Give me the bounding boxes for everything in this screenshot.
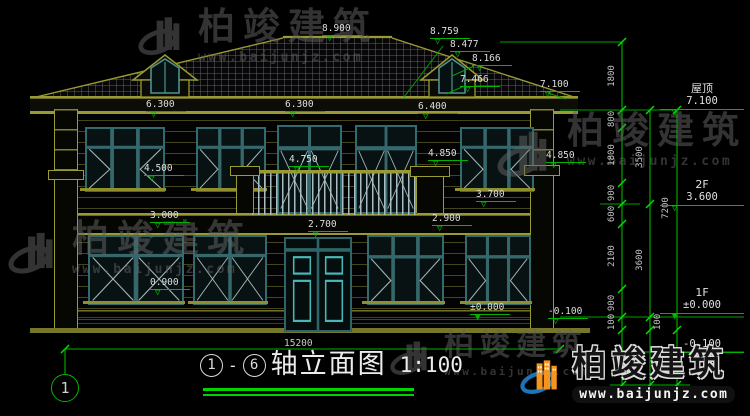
dim-chain-value: 900: [607, 295, 617, 311]
level-value: 0.900: [150, 277, 179, 288]
dim-chain-value: 1800: [607, 65, 617, 87]
level-annotation: 7.466▽: [460, 75, 500, 87]
title-scale: 1:100: [400, 353, 463, 377]
roof-label: 屋顶: [660, 82, 744, 95]
level-annotation: 3.700▽: [476, 190, 516, 202]
level-triangle-icon: ▽: [435, 38, 440, 46]
level-triangle-icon: ▽: [551, 162, 556, 170]
level-annotation: 4.500▽: [144, 164, 184, 176]
level-triangle-icon: ▽: [465, 86, 470, 94]
level-annotation: 4.850▽: [546, 151, 586, 163]
dim-chain-value: 100: [653, 314, 663, 330]
title-text: 轴立面图: [271, 350, 387, 380]
level-value: -0.100: [548, 306, 582, 317]
dim-chain-value: 3500: [635, 146, 645, 168]
level-triangle-icon: ▽: [149, 175, 154, 183]
level-triangle-icon: ▽: [151, 111, 156, 119]
level-annotation: 6.400▽: [418, 102, 458, 114]
level-annotation: 4.750▽: [289, 155, 329, 167]
roof-level-value: 7.100: [660, 95, 744, 107]
title-underline: [203, 388, 414, 396]
level-triangle-icon: ▼: [672, 313, 677, 321]
dim-chain-value: 2100: [607, 245, 617, 267]
level-value: 4.500: [144, 163, 173, 174]
level-value: 6.300: [285, 99, 314, 110]
dim-chain-value: 800: [607, 111, 617, 127]
level-triangle-icon: ▽: [477, 65, 482, 73]
margin-label-2f: 2F 3.600 ▽: [660, 178, 744, 206]
level-triangle-icon: ▽: [313, 231, 318, 239]
level-value: 7.100: [540, 79, 569, 90]
floor2-level-value: 3.600: [660, 191, 744, 203]
level-annotation: 6.300▽: [285, 100, 325, 112]
level-value: 4.750: [289, 154, 318, 165]
level-value: 4.850: [428, 148, 457, 159]
level-annotation: 4.850▽: [428, 149, 468, 161]
roof-outline: [36, 37, 574, 97]
level-triangle-icon: ▽: [437, 225, 442, 233]
level-annotation: 3.000▽: [150, 211, 190, 223]
level-annotation: -0.100▽: [548, 307, 588, 319]
level-value: 6.300: [146, 99, 175, 110]
level-triangle-icon: ▽: [155, 222, 160, 230]
level-value: 3.700: [476, 189, 505, 200]
level-triangle-icon: ▽: [327, 35, 332, 43]
floor2-label: 2F: [660, 178, 744, 191]
level-triangle-icon: ▽: [423, 113, 428, 121]
level-value: 4.850: [546, 150, 575, 161]
drawing-title: 1 - 6 轴立面图 1:100: [200, 350, 463, 380]
floor1-label: 1F: [660, 286, 744, 299]
level-triangle-icon: ▼: [475, 314, 480, 322]
dim-chain-value: 100: [607, 314, 617, 330]
axis-circle-from: 1: [200, 354, 223, 377]
level-annotation: 8.759▽: [430, 27, 470, 39]
level-value: 8.477: [450, 39, 479, 50]
level-annotation: 8.477▽: [450, 40, 490, 52]
level-triangle-icon: ▽: [545, 91, 550, 99]
level-triangle-icon: ▽: [290, 111, 295, 119]
level-value: 8.166: [472, 53, 501, 64]
level-triangle-icon: ▽: [455, 51, 460, 59]
floor1-level-value: ±0.000: [660, 299, 744, 311]
level-value: 2.900: [432, 213, 461, 224]
level-triangle-icon: ▽: [155, 289, 160, 297]
margin-label-roof: 屋顶 7.100 ▽: [660, 82, 744, 110]
dim-chain-value: 1800: [607, 144, 617, 166]
level-annotation: 2.900▽: [432, 214, 472, 226]
overall-width-dimension: 15200: [284, 338, 313, 349]
level-annotation: 2.700▽: [308, 220, 348, 232]
axis-circle-to: 6: [243, 354, 266, 377]
level-annotation: 8.166▽: [472, 54, 512, 66]
below-ground-value: -0.100: [660, 338, 744, 350]
level-triangle-icon: ▽: [294, 166, 299, 174]
level-value: ±0.000: [470, 302, 504, 313]
level-annotation-zero: ±0.000▼: [470, 303, 510, 315]
level-value: 6.400: [418, 101, 447, 112]
level-value: 2.700: [308, 219, 337, 230]
elevation-drawing-canvas: 8.900▽ 8.759▽ 8.477▽ 8.166▽ 7.466▽ 7.100…: [0, 0, 750, 416]
level-annotation: 7.100▽: [540, 80, 580, 92]
level-value: 3.000: [150, 210, 179, 221]
level-triangle-icon: ▽: [672, 109, 677, 117]
axis-dash: -: [228, 356, 238, 375]
level-value: 7.466: [460, 74, 489, 85]
dim-chain-value: 900: [607, 185, 617, 201]
level-triangle-icon: ▽: [481, 201, 486, 209]
axis-bubble-1: 1: [51, 374, 79, 402]
level-triangle-icon: ▽: [672, 352, 677, 360]
level-annotation: 8.900▽: [322, 24, 362, 36]
level-annotation: 6.300▽: [146, 100, 186, 112]
level-triangle-icon: ▽: [672, 205, 677, 213]
level-value: 8.900: [322, 23, 351, 34]
level-triangle-icon: ▽: [433, 160, 438, 168]
dim-chain-value: 600: [607, 206, 617, 222]
margin-label-below-ground: -0.100 ▽: [660, 338, 744, 353]
margin-label-1f: 1F ±0.000 ▼: [660, 286, 744, 314]
dim-chain-value: 3600: [635, 249, 645, 271]
level-triangle-icon: ▽: [553, 318, 558, 326]
level-annotation: 0.900▽: [150, 278, 190, 290]
level-value: 8.759: [430, 26, 459, 37]
